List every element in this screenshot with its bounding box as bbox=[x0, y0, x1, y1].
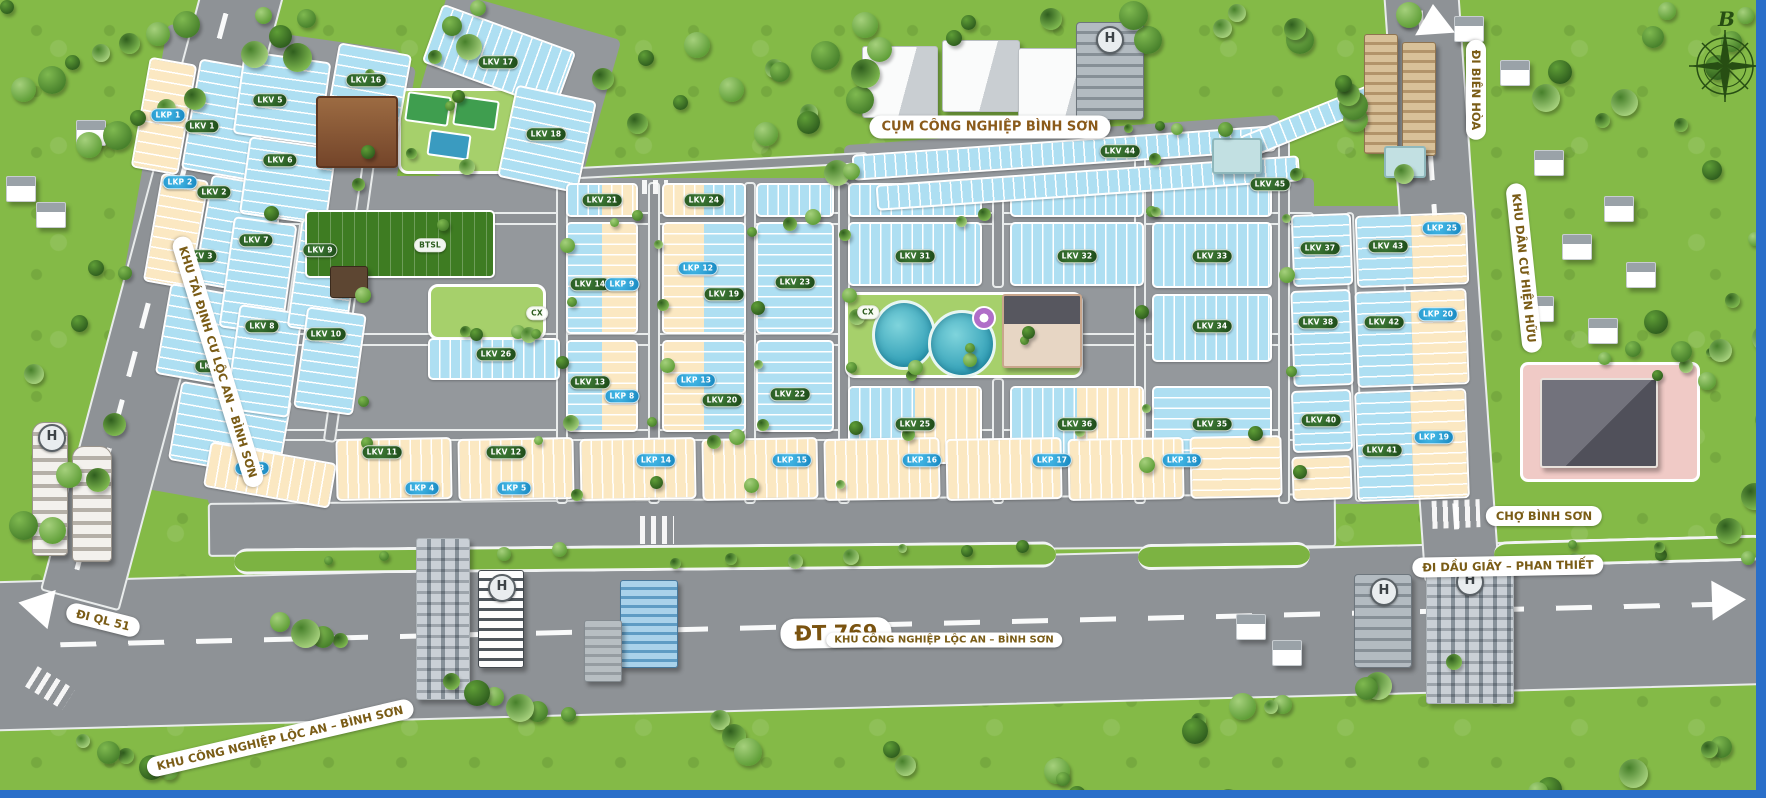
tree-icon bbox=[895, 755, 916, 776]
tree-icon bbox=[670, 558, 681, 569]
tree-icon bbox=[118, 266, 132, 280]
map-frame-bottom bbox=[0, 790, 1766, 798]
tree-icon bbox=[1016, 540, 1029, 553]
tree-icon bbox=[1264, 700, 1278, 714]
label-di-dau-giay-phan-thiet: ĐI DẦU GIÂY – PHAN THIẾT bbox=[1412, 554, 1604, 577]
building-villa bbox=[1588, 318, 1618, 344]
tree-icon bbox=[647, 417, 657, 427]
tree-icon bbox=[1149, 153, 1161, 165]
direction-arrow-right bbox=[1711, 579, 1746, 620]
tree-icon bbox=[442, 16, 462, 36]
tree-icon bbox=[610, 218, 619, 227]
block-badge-lkv-13: LKV 13 bbox=[570, 375, 611, 389]
road-median-green bbox=[1138, 542, 1310, 570]
building-tan bbox=[1364, 34, 1398, 154]
tree-icon bbox=[531, 329, 541, 339]
tree-icon bbox=[1548, 60, 1572, 84]
tree-icon bbox=[1625, 341, 1641, 357]
block-badge-lkv-35: LKV 35 bbox=[1192, 417, 1233, 431]
tree-icon bbox=[747, 227, 757, 237]
tree-icon bbox=[255, 7, 272, 24]
building-villa bbox=[1534, 150, 1564, 176]
block-badge-lkp-17: LKP 17 bbox=[1032, 453, 1072, 467]
tree-icon bbox=[1702, 160, 1722, 180]
tree-icon bbox=[783, 217, 797, 231]
building-factory bbox=[942, 40, 1020, 112]
tree-icon bbox=[757, 419, 769, 431]
tree-icon bbox=[1124, 124, 1133, 133]
tree-icon bbox=[1709, 339, 1732, 362]
building-villa bbox=[1604, 196, 1634, 222]
tree-icon bbox=[1698, 372, 1716, 390]
tree-icon bbox=[650, 476, 663, 489]
building-villa bbox=[36, 202, 66, 228]
tree-icon bbox=[1279, 267, 1295, 283]
tree-icon bbox=[1290, 168, 1303, 181]
block-badge-lkv-41: LKV 41 bbox=[1362, 443, 1403, 457]
tree-icon bbox=[283, 43, 312, 72]
lot-band bbox=[1410, 290, 1467, 384]
tree-icon bbox=[1611, 89, 1638, 116]
lot-block bbox=[662, 222, 746, 334]
block-badge-lkv-33: LKV 33 bbox=[1192, 249, 1233, 263]
tree-icon bbox=[355, 287, 371, 303]
tree-icon bbox=[632, 210, 643, 221]
label-di-bien-hoa: ĐI BIÊN HÒA bbox=[1466, 40, 1486, 140]
block-badge-lkv-2: LKV 2 bbox=[196, 185, 231, 199]
tree-icon bbox=[1040, 8, 1062, 30]
block-badge-lkv-11: LKV 11 bbox=[362, 445, 403, 459]
tree-icon bbox=[1598, 352, 1611, 365]
tree-icon bbox=[867, 37, 892, 62]
tree-icon bbox=[470, 328, 483, 341]
block-badge-lkv-37: LKV 37 bbox=[1300, 241, 1341, 255]
tree-icon bbox=[561, 707, 576, 722]
block-badge-lkp-2: LKP 2 bbox=[163, 175, 198, 189]
block-badge-lkv-5: LKV 5 bbox=[252, 93, 287, 107]
compass-rose: B bbox=[1682, 6, 1766, 110]
tree-icon bbox=[1741, 551, 1755, 565]
lot-block bbox=[1290, 289, 1353, 387]
tree-icon bbox=[719, 77, 744, 102]
tree-icon bbox=[654, 240, 663, 249]
tree-icon bbox=[571, 489, 583, 501]
tree-icon bbox=[627, 113, 648, 134]
tree-icon bbox=[673, 95, 688, 110]
tree-icon bbox=[1171, 123, 1183, 135]
tree-icon bbox=[1532, 84, 1560, 112]
tree-icon bbox=[811, 41, 840, 70]
building-cyl bbox=[72, 446, 112, 562]
tree-icon bbox=[1248, 426, 1263, 441]
building-villa bbox=[1236, 614, 1266, 640]
lot-block bbox=[1067, 437, 1184, 501]
block-badge-lkv-32: LKV 32 bbox=[1057, 249, 1098, 263]
tree-icon bbox=[1119, 1, 1148, 30]
tree-icon bbox=[1155, 121, 1165, 131]
tree-icon bbox=[846, 362, 857, 373]
tree-icon bbox=[0, 0, 14, 14]
svg-text:B: B bbox=[1717, 7, 1735, 31]
tree-icon bbox=[1355, 677, 1378, 700]
tree-icon bbox=[560, 238, 575, 253]
tree-icon bbox=[119, 33, 140, 54]
block-badge-cx: CX bbox=[857, 305, 879, 319]
lot-band bbox=[1410, 390, 1468, 498]
tree-icon bbox=[291, 619, 320, 648]
tree-icon bbox=[11, 77, 36, 102]
tree-icon bbox=[76, 734, 90, 748]
tree-icon bbox=[118, 748, 134, 764]
tree-icon bbox=[552, 542, 567, 557]
tree-icon bbox=[1218, 122, 1233, 137]
tree-icon bbox=[97, 741, 120, 764]
label-khu-cong-nghiep-loc-an-binh-son-s: KHU CÔNG NGHIỆP LỘC AN – BÌNH SƠN bbox=[826, 633, 1062, 648]
tree-icon bbox=[1619, 759, 1648, 788]
tree-icon bbox=[851, 59, 880, 88]
tree-icon bbox=[470, 0, 486, 16]
block-badge-lkv-25: LKV 25 bbox=[895, 417, 936, 431]
tree-icon bbox=[592, 68, 614, 90]
building-villa bbox=[1500, 60, 1530, 86]
tree-icon bbox=[333, 633, 348, 648]
tree-icon bbox=[88, 260, 104, 276]
block-badge-lkv-36: LKV 36 bbox=[1057, 417, 1098, 431]
tree-icon bbox=[506, 694, 534, 722]
lot-block bbox=[823, 437, 940, 501]
tree-icon bbox=[1056, 772, 1070, 786]
tree-icon bbox=[534, 436, 543, 445]
block-badge-btsl: BTSL bbox=[414, 238, 446, 252]
block-badge-lkp-18: LKP 18 bbox=[1162, 453, 1202, 467]
block-badge-lkv-16: LKV 16 bbox=[346, 73, 387, 87]
crosswalk-zebra bbox=[640, 516, 674, 544]
block-badge-lkv-9: LKV 9 bbox=[302, 243, 337, 257]
tree-icon bbox=[567, 297, 577, 307]
tree-icon bbox=[39, 517, 66, 544]
tree-icon bbox=[1701, 741, 1718, 758]
tree-icon bbox=[86, 468, 110, 492]
sports-court bbox=[404, 91, 452, 127]
tree-icon bbox=[1213, 19, 1232, 38]
block-badge-lkv-19: LKV 19 bbox=[704, 287, 745, 301]
tree-icon bbox=[797, 111, 820, 134]
tree-icon bbox=[1022, 326, 1035, 339]
block-badge-lkv-20: LKV 20 bbox=[702, 393, 743, 407]
tree-icon bbox=[1286, 366, 1297, 377]
tree-icon bbox=[725, 553, 737, 565]
block-badge-lkv-38: LKV 38 bbox=[1298, 315, 1339, 329]
building-villa bbox=[1562, 234, 1592, 260]
tree-icon bbox=[1228, 4, 1246, 22]
block-badge-lkp-12: LKP 12 bbox=[678, 261, 718, 275]
tree-icon bbox=[130, 110, 146, 126]
building-club bbox=[1002, 294, 1082, 368]
tree-icon bbox=[241, 41, 268, 68]
tree-icon bbox=[660, 358, 675, 373]
tree-icon bbox=[1654, 542, 1665, 553]
block-badge-lkp-19: LKP 19 bbox=[1414, 430, 1454, 444]
tree-icon bbox=[1284, 18, 1306, 40]
tree-icon bbox=[849, 421, 863, 435]
tree-icon bbox=[76, 132, 102, 158]
tree-icon bbox=[556, 356, 569, 369]
tree-icon bbox=[1151, 207, 1161, 217]
tree-icon bbox=[38, 66, 66, 94]
helipad-icon: H bbox=[1370, 578, 1398, 606]
lot-block bbox=[756, 183, 834, 217]
block-badge-lkp-16: LKP 16 bbox=[902, 453, 942, 467]
block-badge-lkp-5: LKP 5 bbox=[497, 481, 532, 495]
lot-block bbox=[1354, 288, 1469, 388]
tree-icon bbox=[456, 34, 482, 60]
tree-icon bbox=[1642, 26, 1664, 48]
label-cho-binh-son: CHỢ BÌNH SƠN bbox=[1486, 506, 1602, 526]
tree-icon bbox=[352, 178, 365, 191]
label-khu-dan-cu-hien-huu: KHU DÂN CƯ HIỆN HỮU bbox=[1505, 182, 1543, 353]
tree-icon bbox=[1644, 310, 1668, 334]
block-badge-lkv-34: LKV 34 bbox=[1192, 319, 1233, 333]
building-school bbox=[316, 96, 398, 168]
tree-icon bbox=[1446, 654, 1462, 670]
tree-icon bbox=[379, 551, 389, 561]
tree-icon bbox=[657, 299, 669, 311]
lot-block bbox=[579, 437, 696, 501]
block-badge-lkv-18: LKV 18 bbox=[526, 127, 567, 141]
tree-icon bbox=[103, 121, 132, 150]
tree-icon bbox=[428, 50, 442, 64]
building-teal bbox=[1212, 138, 1262, 174]
tree-icon bbox=[184, 88, 206, 110]
park-fountain-icon bbox=[972, 306, 996, 330]
direction-arrow-up bbox=[1413, 3, 1455, 36]
tree-icon bbox=[754, 122, 778, 146]
tree-icon bbox=[173, 11, 200, 38]
tree-icon bbox=[1725, 293, 1740, 308]
tree-icon bbox=[1595, 113, 1610, 128]
tree-icon bbox=[65, 55, 80, 70]
tree-icon bbox=[965, 343, 975, 353]
block-badge-lkv-10: LKV 10 bbox=[306, 327, 347, 341]
tree-icon bbox=[71, 315, 88, 332]
tree-icon bbox=[1182, 718, 1208, 744]
block-badge-lkp-9: LKP 9 bbox=[605, 277, 640, 291]
park-lake bbox=[872, 300, 936, 370]
tree-icon bbox=[684, 32, 710, 58]
tree-icon bbox=[744, 478, 759, 493]
tree-icon bbox=[1568, 540, 1577, 549]
block-badge-lkp-14: LKP 14 bbox=[636, 453, 676, 467]
tree-icon bbox=[956, 216, 967, 227]
tree-icon bbox=[707, 435, 721, 449]
tree-icon bbox=[961, 15, 976, 30]
building-wtower bbox=[416, 538, 470, 700]
tree-icon bbox=[1671, 341, 1692, 362]
tree-icon bbox=[9, 511, 38, 540]
tree-icon bbox=[843, 163, 860, 180]
tree-icon bbox=[1139, 457, 1155, 473]
block-badge-lkp-13: LKP 13 bbox=[676, 373, 716, 387]
crosswalk-zebra bbox=[1432, 499, 1481, 529]
helipad-icon: H bbox=[488, 574, 516, 602]
tree-icon bbox=[324, 556, 333, 565]
block-badge-lkp-4: LKP 4 bbox=[405, 481, 440, 495]
tree-icon bbox=[836, 480, 845, 489]
tree-icon bbox=[946, 30, 962, 46]
block-badge-lkv-12: LKV 12 bbox=[486, 445, 527, 459]
block-badge-lkp-8: LKP 8 bbox=[605, 389, 640, 403]
tree-icon bbox=[459, 159, 475, 175]
block-badge-lkv-45: LKV 45 bbox=[1250, 177, 1291, 191]
tree-icon bbox=[770, 62, 790, 82]
tree-icon bbox=[1282, 214, 1291, 223]
building-villa bbox=[6, 176, 36, 202]
tree-icon bbox=[445, 101, 455, 111]
tree-icon bbox=[852, 12, 878, 38]
block-badge-lkv-6: LKV 6 bbox=[262, 153, 297, 167]
tree-icon bbox=[1229, 693, 1256, 720]
building-villa bbox=[1272, 640, 1302, 666]
tree-icon bbox=[1293, 465, 1307, 479]
building-tan bbox=[1402, 42, 1436, 156]
tree-icon bbox=[1142, 404, 1151, 413]
tree-icon bbox=[961, 545, 973, 557]
block-badge-lkp-1: LKP 1 bbox=[151, 108, 186, 122]
tree-icon bbox=[734, 738, 762, 766]
tree-icon bbox=[1674, 118, 1688, 132]
tree-icon bbox=[883, 741, 900, 758]
block-badge-lkv-42: LKV 42 bbox=[1364, 315, 1405, 329]
tree-icon bbox=[452, 90, 465, 103]
tree-icon bbox=[358, 396, 369, 407]
block-badge-lkv-21: LKV 21 bbox=[582, 193, 623, 207]
tree-icon bbox=[1652, 370, 1663, 381]
tree-icon bbox=[1658, 2, 1676, 20]
helipad-icon: H bbox=[1096, 26, 1124, 54]
tree-icon bbox=[978, 208, 991, 221]
building-villa bbox=[1626, 262, 1656, 288]
block-badge-lkv-8: LKV 8 bbox=[244, 319, 279, 333]
block-badge-lkv-22: LKV 22 bbox=[770, 387, 811, 401]
master-plan-map: HHHHH LKP 1LKV 1LKP 2LKV 2LKV 3LKV 4LKP … bbox=[0, 0, 1766, 798]
tree-icon bbox=[842, 288, 857, 303]
tree-icon bbox=[729, 429, 745, 445]
map-frame-right bbox=[1756, 0, 1766, 798]
tree-icon bbox=[297, 9, 316, 28]
tree-icon bbox=[963, 353, 977, 367]
tree-icon bbox=[1134, 26, 1162, 54]
block-badge-lkv-17: LKV 17 bbox=[478, 55, 519, 69]
tree-icon bbox=[270, 612, 290, 632]
lot-block bbox=[945, 437, 1062, 501]
tree-icon bbox=[839, 229, 851, 241]
tree-icon bbox=[908, 360, 923, 375]
tree-icon bbox=[805, 209, 821, 225]
building-villa bbox=[1454, 16, 1484, 42]
lot-block bbox=[756, 340, 834, 432]
tree-icon bbox=[497, 547, 511, 561]
label-cum-cong-nghiep-binh-son: CỤM CÔNG NGHIỆP BÌNH SƠN bbox=[869, 116, 1110, 139]
tree-icon bbox=[843, 549, 859, 565]
tree-icon bbox=[361, 145, 375, 159]
block-badge-lkp-15: LKP 15 bbox=[772, 453, 812, 467]
block-badge-lkv-24: LKV 24 bbox=[684, 193, 725, 207]
tree-icon bbox=[406, 148, 417, 159]
block-badge-lkp-25: LKP 25 bbox=[1422, 221, 1462, 235]
lot-band bbox=[664, 224, 704, 332]
building-gbldg bbox=[584, 620, 622, 682]
tree-icon bbox=[464, 680, 490, 706]
tree-icon bbox=[56, 462, 82, 488]
lot-band bbox=[704, 224, 744, 332]
block-badge-lkv-40: LKV 40 bbox=[1301, 413, 1342, 427]
tree-icon bbox=[788, 554, 803, 569]
helipad-icon: H bbox=[38, 424, 66, 452]
block-badge-cx: CX bbox=[526, 306, 548, 320]
tree-icon bbox=[24, 364, 44, 384]
road-segment bbox=[558, 152, 868, 180]
tree-icon bbox=[898, 544, 907, 553]
tree-icon bbox=[754, 360, 763, 369]
building-glass bbox=[620, 580, 678, 668]
tree-icon bbox=[103, 413, 126, 436]
block-badge-lkv-26: LKV 26 bbox=[476, 347, 517, 361]
block-badge-lkv-31: LKV 31 bbox=[895, 249, 936, 263]
tree-icon bbox=[1135, 305, 1149, 319]
lot-block bbox=[1189, 435, 1282, 499]
tree-icon bbox=[751, 301, 765, 315]
tree-icon bbox=[846, 86, 874, 114]
building-market bbox=[1540, 378, 1658, 468]
block-badge-lkv-1: LKV 1 bbox=[184, 119, 219, 133]
tree-icon bbox=[638, 50, 654, 66]
tree-icon bbox=[1716, 518, 1742, 544]
tree-icon bbox=[443, 673, 460, 690]
block-badge-lkv-44: LKV 44 bbox=[1100, 144, 1141, 158]
tree-icon bbox=[437, 219, 449, 231]
block-badge-lkv-43: LKV 43 bbox=[1368, 239, 1409, 253]
block-badge-lkv-7: LKV 7 bbox=[238, 233, 273, 247]
lot-band bbox=[1356, 292, 1413, 386]
tree-icon bbox=[264, 206, 279, 221]
tree-icon bbox=[1335, 75, 1352, 92]
tree-icon bbox=[92, 44, 110, 62]
tree-icon bbox=[1394, 164, 1414, 184]
tree-icon bbox=[146, 22, 170, 46]
tree-icon bbox=[269, 25, 292, 48]
tree-icon bbox=[563, 415, 579, 431]
block-badge-lkp-20: LKP 20 bbox=[1418, 307, 1458, 321]
block-badge-lkv-23: LKV 23 bbox=[775, 275, 816, 289]
